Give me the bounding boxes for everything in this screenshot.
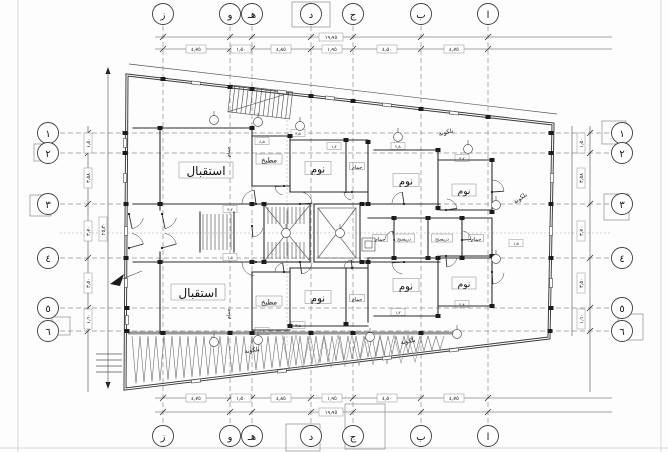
grid-bubble: ٤	[612, 248, 633, 269]
room-label-group: حمام	[226, 309, 232, 320]
door	[299, 192, 312, 205]
column-marker	[125, 306, 130, 310]
stair-tread	[250, 87, 253, 114]
dim-label-group: ٤٫٧٥	[186, 394, 206, 402]
grid-bubble-label: ٤	[45, 254, 50, 265]
grid-bubble-label: ا	[487, 10, 490, 21]
door-pivot	[461, 239, 463, 241]
column-marker	[419, 331, 424, 335]
grid-bubble-label: ٢	[619, 149, 624, 160]
tag-circles	[210, 111, 501, 347]
door	[344, 191, 353, 200]
grid-bubble: ٣	[612, 194, 633, 215]
stair-tread	[268, 90, 271, 117]
tag	[282, 224, 291, 238]
dim-label: ١٫٦٠	[86, 314, 92, 324]
dim-label: ٣٫٥٠	[86, 278, 92, 288]
door-swing-arc	[493, 273, 504, 284]
floor-plan-canvas: ٤٫٧٥٤٫٧٥١٫٥٠١٫٥٠٤٫٨٥٤٫٨٥١٫٩٥١٫٩٥٤٫٥٠٤٫٥٠…	[0, 0, 668, 452]
tag	[492, 196, 501, 210]
tag	[366, 328, 375, 342]
column-marker	[250, 331, 255, 335]
window-marker	[382, 103, 391, 107]
room-label-group: نوم	[393, 174, 419, 188]
grid-bubble: ١	[38, 123, 59, 144]
door	[491, 271, 504, 284]
dim-label-group: ١٫٩٥	[322, 45, 342, 53]
room-label: مطبخ	[261, 298, 277, 306]
grid-bubble: ١	[612, 123, 633, 144]
door-swing-arc	[132, 218, 143, 229]
room-label: بلكونة	[512, 191, 529, 206]
column-marker	[436, 206, 441, 210]
room-label: استقبال	[178, 286, 217, 300]
column-marker	[360, 260, 365, 264]
column-marker	[288, 134, 293, 138]
grid-bubble: ب	[411, 426, 432, 447]
grid-bubble-label: ج	[350, 432, 357, 443]
grid-bubble: ج	[343, 4, 364, 25]
room-label: حمام	[226, 147, 232, 158]
room-label-group: نوم	[305, 162, 331, 176]
dim-label-group: ١٫٥٠	[231, 45, 251, 53]
column-marker	[490, 158, 495, 162]
window-marker	[124, 174, 127, 183]
column-marker	[436, 148, 441, 152]
column-marker	[124, 202, 129, 206]
dim-label: ١٫٦٠	[579, 314, 585, 324]
column-marker	[123, 151, 128, 155]
column-marker	[360, 202, 365, 206]
door-pivot	[128, 213, 130, 215]
door	[491, 180, 504, 193]
dim-label: ٣٫٥	[295, 131, 301, 136]
column-marker	[490, 304, 495, 308]
grid-bubble-label: هـ	[247, 10, 256, 21]
column-marker	[351, 99, 356, 103]
window-marker	[126, 316, 129, 325]
room-labels: استقبالاستقبالمطبخمطبخنومنومنومنومنومنوم…	[171, 127, 529, 355]
door	[275, 185, 285, 195]
grid-bubble-label: ٤	[619, 254, 624, 265]
grid-bubble: ٤	[38, 248, 59, 269]
column-marker	[436, 256, 441, 260]
tag-circle	[254, 336, 263, 345]
column-marker	[436, 314, 441, 318]
door-swing-arc	[344, 193, 351, 200]
room-label: حمام	[352, 297, 363, 303]
grid-bubble: ا	[478, 426, 499, 447]
dim-label: ٢٫٨	[395, 144, 401, 149]
column-marker	[228, 85, 233, 89]
door-pivot	[403, 203, 405, 205]
room-label: دريسنج	[435, 238, 449, 243]
column-marker	[549, 256, 554, 260]
door-pivot	[351, 191, 353, 193]
room-label: حمام	[352, 165, 363, 171]
grid-bubble-label: د	[309, 432, 313, 443]
room-label: نوم	[399, 177, 413, 188]
door	[445, 255, 457, 267]
column-marker	[392, 256, 397, 260]
room-label-group: مطبخ	[256, 296, 282, 306]
dim-label: ١٫٥	[513, 241, 519, 246]
dim-label-group: ٤٫٥	[255, 138, 269, 145]
column-marker	[351, 331, 356, 335]
dim-label-group: ٤٫٨٥	[271, 394, 291, 402]
grid-bubble: ٦	[612, 321, 633, 342]
dim-label: ٤٫٧٥	[191, 396, 201, 402]
tag-circle	[210, 338, 219, 347]
grid-bubble-label: و	[227, 432, 233, 443]
drawing-sheet: ٤٫٧٥٤٫٧٥١٫٥٠١٫٥٠٤٫٨٥٤٫٨٥١٫٩٥١٫٩٥٤٫٥٠٤٫٥٠…	[0, 0, 668, 452]
door	[445, 199, 457, 211]
door-pivot	[255, 261, 257, 263]
dim-label-group: ٤٫٧٥	[186, 45, 206, 53]
dim-label: ٤٫٧٥	[449, 396, 459, 402]
dim-label: ١٫٥٠	[86, 138, 92, 148]
dim-label: ٣٫٥٨	[86, 173, 92, 183]
dim-label: ١٫٥٠	[579, 138, 585, 148]
door-leaf	[402, 192, 404, 204]
door-swing-arc	[253, 228, 263, 237]
door-pivot	[351, 267, 353, 269]
window-marker	[550, 279, 553, 288]
room-label: نوم	[458, 187, 471, 197]
door-leaf	[344, 192, 352, 193]
grid-bubble-label: ب	[416, 10, 425, 21]
door-swing-arc	[165, 218, 176, 229]
grid-bubble-label: ٥	[45, 304, 50, 315]
room-label-group: مطبخ	[256, 154, 282, 164]
door-swing-arc	[165, 233, 176, 244]
column-marker	[250, 87, 255, 91]
dim-label-group: ٣٫٥	[291, 322, 305, 329]
grid-bubble-label: ١	[619, 129, 624, 140]
dim-label-group: ١٫٢	[327, 143, 341, 150]
dim-label-group: ٣٫٥٠	[577, 273, 585, 293]
dim-label-group: ٣٫٧٠	[84, 221, 92, 241]
hall-stair	[203, 214, 231, 250]
tag-circle	[453, 330, 462, 339]
tag-circle	[210, 116, 219, 125]
tag	[210, 111, 219, 125]
tag-circle	[492, 201, 501, 210]
window-marker	[550, 227, 553, 236]
room-label: نوم	[311, 165, 325, 176]
dim-label: ٤٫٨٥	[276, 396, 286, 402]
dim-label: ٤٫٧٥	[191, 47, 201, 53]
room-label-group: حمام	[350, 163, 365, 171]
room-label-group: نوم	[305, 291, 331, 305]
window-marker	[551, 174, 554, 183]
tag	[336, 224, 345, 238]
room-label-group: دريسنج	[432, 234, 453, 243]
tag-circle	[394, 133, 403, 142]
door-pivot	[445, 209, 447, 211]
column-marker	[549, 151, 554, 155]
door-leaf	[162, 214, 165, 229]
door-swing-arc	[392, 192, 402, 203]
dim-label-group: ٣٫٧٠	[577, 221, 585, 241]
column-marker	[309, 331, 314, 335]
door-swing-arc	[275, 187, 283, 195]
door-pivot	[491, 271, 493, 273]
door	[299, 261, 312, 274]
grid-bubble-label: ٦	[45, 327, 50, 338]
room-label: نوم	[399, 282, 413, 293]
column-marker	[161, 331, 166, 335]
dim-label-group: ٣٫٥٠	[84, 273, 92, 293]
column-marker	[262, 202, 267, 206]
room-label: حمام	[226, 309, 232, 320]
column-marker	[490, 210, 495, 214]
dim-label: ١٫٩٥	[327, 396, 337, 402]
stair-tread	[245, 87, 248, 114]
dim-label: ٤٫٧٥	[449, 47, 459, 53]
column-marker	[158, 202, 163, 206]
grid-bubble-label: ٥	[619, 304, 624, 315]
column-marker	[123, 131, 128, 135]
stair-tread	[272, 90, 275, 117]
column-marker	[288, 324, 293, 328]
column-marker	[262, 260, 267, 264]
room-label: حمام	[471, 237, 482, 243]
dim-label: ٣٫٥	[295, 323, 301, 328]
room-label-group: نوم	[452, 277, 476, 290]
dim-label-group: ١٫٢	[391, 309, 405, 316]
grid-bubble: ز	[153, 4, 174, 25]
dim-label-group: ٤٫٧٥	[444, 45, 464, 53]
door-leaf	[492, 191, 504, 192]
grid-bubble-label: ز	[160, 10, 166, 21]
door-pivot	[128, 247, 130, 249]
grid-bubble-label: ٣	[45, 200, 51, 211]
grid-bubble: ج	[343, 426, 364, 447]
dim-label-group: ١٫٥٠	[231, 394, 251, 402]
dim-label-group: ١٫٦٠	[84, 309, 92, 329]
room-label-group: استقبال	[179, 162, 233, 178]
room-label: دريسنج	[397, 238, 411, 243]
dim-label: ٣٫٧٠	[579, 226, 585, 236]
grid-bubble: ٥	[612, 298, 633, 319]
dim-label-group: ٤٫٨٥	[271, 45, 291, 53]
grid-bubble: ٢	[38, 143, 59, 164]
pergola-hatch	[132, 335, 444, 384]
dim-label-group: ١٫٥٠	[577, 133, 585, 153]
door-swing-arc	[493, 180, 504, 191]
column-marker	[309, 94, 314, 98]
door-leaf	[275, 186, 284, 187]
column-marker	[344, 138, 349, 142]
room-label-group: دريسنج	[394, 234, 415, 243]
room-label: مطبخ	[261, 156, 277, 164]
dim-label-group: ٣٫٥٨	[577, 168, 585, 188]
door	[392, 192, 405, 205]
column-marker	[158, 126, 163, 130]
dim-label-group: ١٩٫٩٥	[319, 33, 343, 41]
room-label-group: نوم	[393, 279, 419, 293]
door-swing-arc	[385, 231, 393, 239]
door-leaf	[129, 214, 132, 229]
grid-bubble: ز	[153, 426, 174, 447]
dim-label-group: ٣٫٥٨	[84, 168, 92, 188]
tag	[394, 128, 403, 142]
room-label: نوم	[311, 294, 325, 305]
dim-label-group: ٤٫٥٠	[377, 45, 397, 53]
column-marker	[250, 202, 255, 206]
column-marker	[366, 140, 371, 144]
room-label-group: نوم	[452, 184, 476, 197]
grid-bubble-label: ٣	[619, 200, 625, 211]
column-marker	[124, 256, 129, 260]
stair-tread	[277, 91, 280, 118]
column-marker	[549, 306, 554, 310]
door-pivot	[283, 185, 285, 187]
grid-bubble-label: ٢	[45, 149, 50, 160]
door-pivot	[299, 261, 301, 263]
window-marker	[124, 139, 127, 148]
grid-bubble-label: د	[309, 10, 313, 21]
grid-bubble-label: ز	[160, 432, 166, 443]
stair-tread	[241, 86, 244, 113]
dim-label-group: ٤٫٥٠	[377, 394, 397, 402]
room-label: استقبال	[186, 164, 225, 178]
door-swing-arc	[392, 263, 402, 274]
tag-circle	[254, 118, 263, 127]
door-leaf	[129, 244, 143, 248]
door-pivot	[161, 213, 163, 215]
dim-label-group: ١٩٫٩٥	[319, 408, 343, 416]
dim-label: ١٫٥	[227, 255, 233, 260]
dim-label: ١٫٢	[395, 310, 401, 315]
grid-bubble: ٣	[38, 194, 59, 215]
column-marker	[460, 216, 465, 220]
grid-bubble-label: ج	[350, 10, 357, 21]
dim-label: ٣٫٥٠	[579, 278, 585, 288]
stair-tread	[254, 88, 257, 115]
window-marker	[125, 279, 128, 288]
column-marker	[366, 202, 371, 206]
dim-label: ١٫٥٠	[236, 396, 246, 402]
dim-label: ٣٫٢	[227, 207, 233, 212]
door-pivot	[445, 255, 447, 257]
dim-label-group: ٢٫٨	[391, 143, 405, 150]
grid-bubble-label: و	[227, 10, 233, 21]
column-marker	[250, 126, 255, 130]
door-leaf	[162, 244, 176, 248]
grid-bubble: و	[220, 4, 241, 25]
tag-circle	[282, 229, 291, 238]
column-marker	[250, 260, 255, 264]
dim-label-group: ١٫٥	[509, 240, 523, 247]
grid-bubble: ٥	[38, 298, 59, 319]
room-label-group: حمام	[226, 147, 232, 158]
entry-arrow-icon	[110, 274, 124, 286]
column-marker	[426, 216, 431, 220]
door	[128, 213, 143, 229]
room-label-group: بلكونة	[438, 127, 455, 137]
tag	[464, 140, 473, 154]
grid-bubble-label: ا	[487, 432, 490, 443]
column-marker	[549, 202, 554, 206]
column-marker	[460, 256, 465, 260]
door-swing-arc	[275, 263, 283, 271]
dim-label-group: ٣٫٢	[223, 206, 237, 213]
grid-bubble: د	[301, 426, 322, 447]
grid-bubble: ب	[411, 4, 432, 25]
room-label-group: حمام	[350, 295, 365, 303]
tag-circle	[464, 145, 473, 154]
tag	[210, 333, 219, 347]
tag	[453, 325, 462, 339]
room-label: حمام	[375, 237, 386, 243]
column-marker	[366, 260, 371, 264]
room-label-group: بلكونة	[512, 191, 529, 206]
stair-tread	[232, 85, 235, 112]
column-marker	[548, 329, 553, 333]
grid-bubble: ٦	[38, 321, 59, 342]
dim-label: ١٫٥٠	[236, 47, 246, 53]
door-swing-arc	[447, 258, 457, 268]
column-marker	[344, 322, 349, 326]
grid-bubble-label: هـ	[247, 432, 256, 443]
column-marker	[392, 216, 397, 220]
grid-bubble: و	[220, 426, 241, 447]
tag-circle	[336, 229, 345, 238]
door-pivot	[403, 261, 405, 263]
dim-label: ٤٫٨٥	[276, 47, 286, 53]
room-label-group: حمام	[469, 235, 484, 243]
dim-label: ٤٫٥٠	[382, 396, 392, 402]
door-pivot	[299, 203, 301, 205]
door-leaf	[283, 263, 284, 272]
door-leaf	[462, 239, 471, 240]
column-marker	[228, 331, 233, 335]
column-marker	[486, 115, 491, 119]
dim-label: ٢٥٫٣٠	[101, 223, 107, 235]
door-pivot	[283, 271, 285, 273]
dim-label-group: ٤٫٧٥	[444, 394, 464, 402]
room-label-group: حمام	[373, 235, 388, 243]
column-marker	[549, 131, 554, 135]
grid-bubble: ٢	[612, 143, 633, 164]
door-pivot	[251, 225, 253, 227]
dim-label: ٣٫٧٠	[86, 226, 92, 236]
door-pivot	[491, 191, 493, 193]
column-marker	[426, 256, 431, 260]
dim-label: ٣٫٥٨	[579, 173, 585, 183]
window-marker	[191, 81, 200, 85]
dim-label-group: ١٫٥٠	[84, 133, 92, 153]
door-pivot	[255, 203, 257, 205]
door-leaf	[351, 260, 352, 268]
grid-bubble-label: ٦	[619, 327, 624, 338]
dim-label: ١٩٫٩٥	[325, 35, 338, 41]
grid-bubble-label: ١	[45, 129, 50, 140]
tag-circle	[492, 255, 501, 264]
door-leaf	[254, 190, 256, 204]
dim-label: ٤٫٥	[259, 139, 265, 144]
door-swing-arc	[132, 233, 143, 244]
dim-label: ١٩٫٩٥	[325, 410, 338, 416]
column-marker	[161, 77, 166, 81]
column-marker	[125, 329, 130, 333]
door-swing-arc	[302, 192, 312, 203]
door-pivot	[161, 247, 163, 249]
dim-label-group: ٢٥٫٣٠	[99, 217, 107, 241]
grid-bubble: د	[301, 4, 322, 25]
